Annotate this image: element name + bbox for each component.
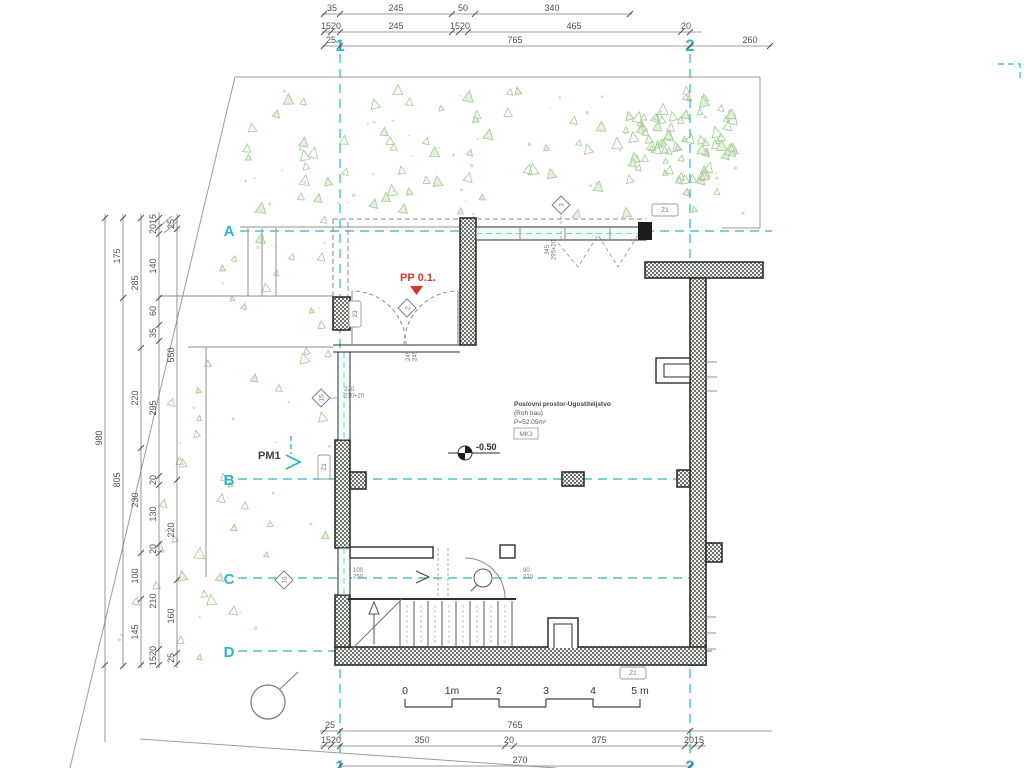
vegetation-triangle xyxy=(231,255,237,261)
vegetation-triangle xyxy=(657,103,668,114)
vegetation-triangle xyxy=(243,144,252,153)
vegetation-triangle xyxy=(653,121,663,131)
vegetation-triangle xyxy=(264,551,270,557)
vegetation-triangle xyxy=(723,120,734,131)
vegetation-triangle xyxy=(576,139,583,146)
dimension-label: 375 xyxy=(591,735,606,745)
vegetation-dot xyxy=(734,166,737,169)
vegetation-dot xyxy=(240,611,242,613)
vegetation-dot xyxy=(328,445,331,448)
wall-west-lower xyxy=(335,595,350,647)
grid-reference-corner xyxy=(998,64,1020,79)
vegetation-triangle xyxy=(302,162,310,170)
dimension-label: 220 xyxy=(130,390,140,405)
vegetation-triangle xyxy=(217,493,226,502)
vegetation-dot xyxy=(272,492,275,495)
element-tag-label: Z1 xyxy=(629,670,637,677)
vegetation-triangle xyxy=(194,547,206,559)
vegetation-triangle xyxy=(572,209,583,220)
vegetation-dot xyxy=(298,148,301,151)
dimension-label: 765 xyxy=(507,35,522,45)
vegetation-dot xyxy=(559,96,562,99)
level-value: -0.50 xyxy=(476,442,497,452)
scalebar-label: 3 xyxy=(543,685,549,697)
vegetation-triangle xyxy=(380,127,388,135)
dimension-label: 160 xyxy=(166,608,176,623)
vegetation-triangle xyxy=(177,636,185,644)
opening-dimension: 100250 xyxy=(353,568,364,581)
vegetation-triangle xyxy=(324,177,333,186)
floor-plan-svg: 1122ABCD xyxy=(0,0,1024,768)
vegetation-triangle xyxy=(582,143,593,154)
vegetation-triangle xyxy=(463,172,474,183)
vegetation-dot xyxy=(120,634,123,637)
dimension-label: 270 xyxy=(512,755,527,765)
opening-dimension-line: 250 xyxy=(353,575,364,581)
dimension-label: 20 xyxy=(681,21,691,31)
vegetation-triangle xyxy=(682,136,687,141)
wall-entrance-right xyxy=(460,218,476,345)
entrance-door-label: PP 0.1. xyxy=(400,272,436,284)
wall-south xyxy=(335,647,706,665)
boundary-line-south xyxy=(140,739,556,768)
vegetation-triangle xyxy=(197,415,203,421)
survey-circle-tail xyxy=(280,672,298,689)
vegetation-triangle xyxy=(275,384,282,391)
vegetation-triangle xyxy=(231,524,238,531)
duct-inner xyxy=(554,624,572,648)
opening-dimension-line: 245 xyxy=(413,350,419,361)
dimension-label: 230 xyxy=(130,492,140,507)
opening-dimension-line: 100 xyxy=(353,568,364,574)
vegetation-triangle xyxy=(298,193,305,200)
vegetation-triangle xyxy=(159,499,168,508)
dimension-label: 210 xyxy=(148,593,158,608)
vegetation-triangle xyxy=(197,654,203,660)
vegetation-triangle xyxy=(479,194,485,200)
vegetation-dot xyxy=(319,307,321,309)
vegetation-triangle xyxy=(543,144,550,151)
wall-entrance-pier xyxy=(333,297,350,330)
vegetation-dot xyxy=(271,245,273,247)
vegetation-triangle xyxy=(668,111,679,122)
element-tag-label: 23 xyxy=(352,310,359,318)
vegetation-triangle xyxy=(545,168,556,179)
dimension-label: 25 xyxy=(326,35,336,45)
scalebar-label: 2 xyxy=(496,685,502,697)
opening-dimension-line: 220 xyxy=(344,387,355,393)
dimension-label: 245 xyxy=(388,3,403,13)
vegetation-dot xyxy=(288,401,291,404)
vegetation-triangle xyxy=(714,188,720,194)
dimension-label: 350 xyxy=(414,735,429,745)
grid-label: C xyxy=(224,571,235,588)
vegetation-dot xyxy=(198,616,200,618)
vegetation-triangle xyxy=(317,321,325,329)
vegetation-triangle xyxy=(667,123,676,132)
vegetation-triangle xyxy=(678,155,685,162)
room-label-line1: Poslovni prostor-Ugostiteljstvo xyxy=(514,401,611,408)
dimension-label: 550 xyxy=(166,347,176,362)
vegetation-triangle xyxy=(621,207,632,218)
vegetation-dot xyxy=(352,193,356,197)
opening-dimension-line: 295+20 xyxy=(552,239,558,260)
dimension-label: 20 xyxy=(148,475,158,485)
vegetation-triangle xyxy=(369,98,381,110)
vegetation-triangle xyxy=(193,430,201,438)
vegetation-dot xyxy=(171,398,174,401)
dimension-label: 25 xyxy=(166,219,176,229)
vegetation-triangle xyxy=(309,307,315,313)
scalebar xyxy=(405,699,640,707)
dimension-label: 1520 xyxy=(321,735,341,745)
vegetation-triangle xyxy=(246,154,252,160)
vegetation-triangle xyxy=(255,202,267,214)
dimension-label: 340 xyxy=(544,3,559,13)
vegetation-dot xyxy=(180,442,182,444)
vegetation-dot xyxy=(476,138,478,140)
vegetation-triangle xyxy=(527,163,539,175)
dimension-label: 765 xyxy=(507,720,522,730)
wall-solid-block xyxy=(638,222,652,240)
vegetation-dot xyxy=(589,184,592,187)
vegetation-triangle xyxy=(397,166,406,175)
room-label-line3: P=52.05m² xyxy=(514,419,547,426)
vegetation-dot xyxy=(256,246,259,249)
vegetation-dot xyxy=(192,406,195,409)
vegetation-triangle xyxy=(405,188,413,196)
vegetation-dot xyxy=(601,96,604,99)
dimension-label: 2015 xyxy=(684,735,704,745)
vegetation-triangle xyxy=(642,155,649,162)
vegetation-dot xyxy=(411,155,413,157)
dimension-label: 245 xyxy=(388,21,403,31)
dimension-label: 175 xyxy=(112,248,122,263)
vegetation-dot xyxy=(245,160,247,162)
dimension-label: 285 xyxy=(130,275,140,290)
vegetation-triangle xyxy=(658,116,666,124)
dimension-label: 260 xyxy=(742,35,757,45)
vegetation-triangle xyxy=(314,193,323,202)
section-marker-arrow xyxy=(286,455,300,469)
dimension-label: 35 xyxy=(327,3,337,13)
vegetation-triangle xyxy=(483,128,495,140)
vegetation-dot xyxy=(460,188,463,191)
dimension-label: 35 xyxy=(148,328,158,338)
vegetation-dot xyxy=(715,172,717,174)
vegetation-triangle xyxy=(247,123,256,132)
dimension-label: 145 xyxy=(130,624,140,639)
dimension-label: 25 xyxy=(166,653,176,663)
dimension-label: 1520 xyxy=(148,646,158,666)
vegetation-triangle xyxy=(596,121,606,131)
opening-dimension-line: 210 xyxy=(523,575,534,581)
vegetation-triangle xyxy=(299,137,310,148)
vegetation-triangle xyxy=(321,531,329,539)
dimension-label: 805 xyxy=(112,472,122,487)
vegetation-triangle xyxy=(256,233,267,244)
position-diamond-label: 16 xyxy=(282,576,289,584)
wall-west-mid xyxy=(335,440,350,548)
vegetation-dot xyxy=(244,180,247,183)
vegetation-triangle xyxy=(381,193,390,202)
dimension-label: 100 xyxy=(130,568,140,583)
vegetation-triangle xyxy=(241,501,249,509)
vegetation-dot xyxy=(275,441,277,443)
vegetation-triangle xyxy=(261,283,271,293)
vegetation-dot xyxy=(465,200,467,202)
position-diamond-label: 2 xyxy=(405,306,412,310)
wall-niche-inner xyxy=(664,364,690,377)
scalebar-label: 0 xyxy=(402,685,408,697)
dimension-label: 130 xyxy=(148,506,158,521)
vegetation-triangle xyxy=(178,458,187,467)
vegetation-dot xyxy=(549,106,551,108)
wall-east xyxy=(690,278,706,665)
scalebar-label: 5 m xyxy=(631,685,649,697)
vegetation-dot xyxy=(268,203,271,206)
vegetation-triangle xyxy=(710,126,723,139)
grid-label: B xyxy=(224,472,235,489)
vegetation-dot xyxy=(619,149,622,152)
vegetation-dot xyxy=(222,282,224,284)
vegetation-dot xyxy=(254,626,258,630)
vegetation-triangle xyxy=(386,136,394,144)
vegetation-triangle xyxy=(283,94,293,104)
vegetation-triangle xyxy=(458,208,464,214)
vegetation-dot xyxy=(438,147,440,149)
vegetation-triangle xyxy=(398,203,408,213)
vegetation-triangle xyxy=(325,351,331,357)
vegetation-dot xyxy=(303,181,306,184)
vegetation-dot xyxy=(254,211,257,214)
vegetation-dot xyxy=(254,177,256,179)
vegetation-dot xyxy=(659,110,663,114)
vegetation-triangle xyxy=(340,135,349,144)
vegetation-dot xyxy=(408,135,410,137)
vegetation-dot xyxy=(323,242,325,244)
scalebar-label: 1m xyxy=(445,685,460,697)
vegetation-triangle xyxy=(272,109,281,118)
vegetation-triangle xyxy=(297,352,310,365)
vegetation-triangle xyxy=(696,135,705,144)
position-diamond-label: 15 xyxy=(319,394,326,402)
vegetation-triangle xyxy=(201,590,208,597)
scalebar-label: 4 xyxy=(590,685,596,697)
floor-plan-canvas: 1122ABCD xyxy=(0,0,1024,768)
dimension-label: 220 xyxy=(166,522,176,537)
vegetation-triangle xyxy=(697,108,704,115)
vegetation-triangle xyxy=(683,87,690,94)
vegetation-triangle xyxy=(593,180,604,191)
vegetation-triangle xyxy=(623,126,629,132)
pm1-label: PM1 xyxy=(258,450,281,462)
vegetation-triangle xyxy=(665,147,672,154)
vegetation-triangle xyxy=(317,252,326,261)
vegetation-dot xyxy=(741,211,744,214)
vegetation-dot xyxy=(460,95,462,97)
opening-dimension-line: 210+20 xyxy=(344,394,365,400)
vegetation-triangle xyxy=(267,521,273,527)
vegetation-dot xyxy=(704,115,708,119)
opening-dimension-line: 245 xyxy=(406,350,412,361)
vegetation-triangle xyxy=(308,146,320,158)
dimension-label: 25 xyxy=(325,720,335,730)
vegetation-dot xyxy=(118,638,121,641)
vegetation-dot xyxy=(337,202,339,204)
wall-neighbor-north xyxy=(645,262,763,278)
vegetation-triangle xyxy=(406,98,414,106)
vegetation-triangle xyxy=(342,168,350,176)
vegetation-dot xyxy=(373,121,376,124)
vegetation-dot xyxy=(470,164,474,168)
wall-east-buttress xyxy=(706,543,722,562)
vegetation-triangle xyxy=(472,115,480,123)
vegetation-triangle xyxy=(663,158,668,163)
vegetation-triangle xyxy=(432,175,443,186)
vegetation-triangle xyxy=(423,176,431,184)
vegetation-triangle xyxy=(300,98,307,105)
vegetation-triangle xyxy=(386,184,398,196)
vegetation-triangle xyxy=(624,111,634,121)
dimension-label: 50 xyxy=(458,3,468,13)
vegetation-triangle xyxy=(570,116,579,125)
vegetation-triangle xyxy=(229,605,238,614)
vegetation-triangle xyxy=(691,205,698,212)
vegetation-triangle xyxy=(289,253,296,260)
vegetation-triangle xyxy=(393,84,403,94)
element-tag-label: Z1 xyxy=(321,463,328,471)
door-jamb xyxy=(500,545,515,558)
vegetation-dot xyxy=(472,213,474,215)
vegetation-triangle xyxy=(250,373,258,381)
vegetation-dot xyxy=(281,169,283,171)
grid-label: A xyxy=(224,223,235,240)
vegetation-dot xyxy=(347,202,349,204)
vegetation-dot xyxy=(452,153,455,156)
dimension-label: 465 xyxy=(566,21,581,31)
vegetation-dot xyxy=(309,522,312,525)
vegetation-triangle xyxy=(241,303,248,310)
vegetation-triangle xyxy=(718,104,725,111)
vegetation-dot xyxy=(367,122,369,124)
dimension-label: 295 xyxy=(148,400,158,415)
vegetation-triangle xyxy=(369,198,379,208)
vegetation-triangle xyxy=(466,148,474,156)
vegetation-triangle xyxy=(300,174,311,185)
vegetation-triangle xyxy=(430,147,440,157)
vegetation-triangle xyxy=(625,174,634,183)
vegetation-dot xyxy=(283,90,286,93)
room-tag: MK3 xyxy=(519,431,533,438)
vegetation-triangle xyxy=(320,216,328,224)
vegetation-triangle xyxy=(504,108,513,117)
vegetation-dot xyxy=(372,173,375,176)
vegetation-triangle xyxy=(462,90,475,103)
element-tag-label: Z1 xyxy=(661,207,669,214)
vegetation-triangle xyxy=(317,411,328,422)
vegetation-triangle xyxy=(507,88,514,95)
vegetation-dot xyxy=(392,120,394,122)
door-symbol-circle xyxy=(474,569,492,587)
interior-pier xyxy=(562,472,584,486)
vegetation-dot xyxy=(528,142,532,146)
position-diamond-label: 3 xyxy=(559,203,566,207)
vegetation-dot xyxy=(645,147,648,150)
vegetation-triangle xyxy=(438,105,444,111)
wall-west-pier xyxy=(350,472,366,489)
dimension-label: 1520 xyxy=(450,21,470,31)
partition-wall xyxy=(350,547,433,558)
vegetation-triangle xyxy=(611,137,622,148)
wall-east-pier xyxy=(677,470,690,487)
dimension-label: 20 xyxy=(148,544,158,554)
vegetation-dot xyxy=(595,182,597,184)
opening-dimension-line: 90 xyxy=(523,568,530,574)
building-interior xyxy=(333,218,722,668)
dimension-label: 140 xyxy=(148,258,158,273)
survey-circle xyxy=(251,685,285,719)
vegetation-triangle xyxy=(423,137,431,145)
vegetation-dot xyxy=(392,189,395,192)
dimension-label: 980 xyxy=(94,430,104,445)
vegetation-triangle xyxy=(303,347,311,355)
dimension-label: 20 xyxy=(504,735,514,745)
room-label-line2: (Roh bau) xyxy=(514,410,543,417)
vegetation-triangle xyxy=(219,265,225,271)
vegetation-dot xyxy=(232,418,235,421)
dimension-label: 60 xyxy=(148,306,158,316)
vegetation-dot xyxy=(716,177,719,180)
grid-label: D xyxy=(224,644,235,661)
opening-dimension-line: 345 xyxy=(545,244,551,255)
dimension-label: 2015 xyxy=(148,214,158,234)
vegetation-triangle xyxy=(195,387,202,394)
dimension-label: 1520 xyxy=(321,21,341,31)
vegetation-triangle xyxy=(681,109,691,119)
vegetation-triangle xyxy=(514,86,522,94)
vegetation-dot xyxy=(585,111,589,115)
opening-dimension: 245245 xyxy=(406,350,419,361)
